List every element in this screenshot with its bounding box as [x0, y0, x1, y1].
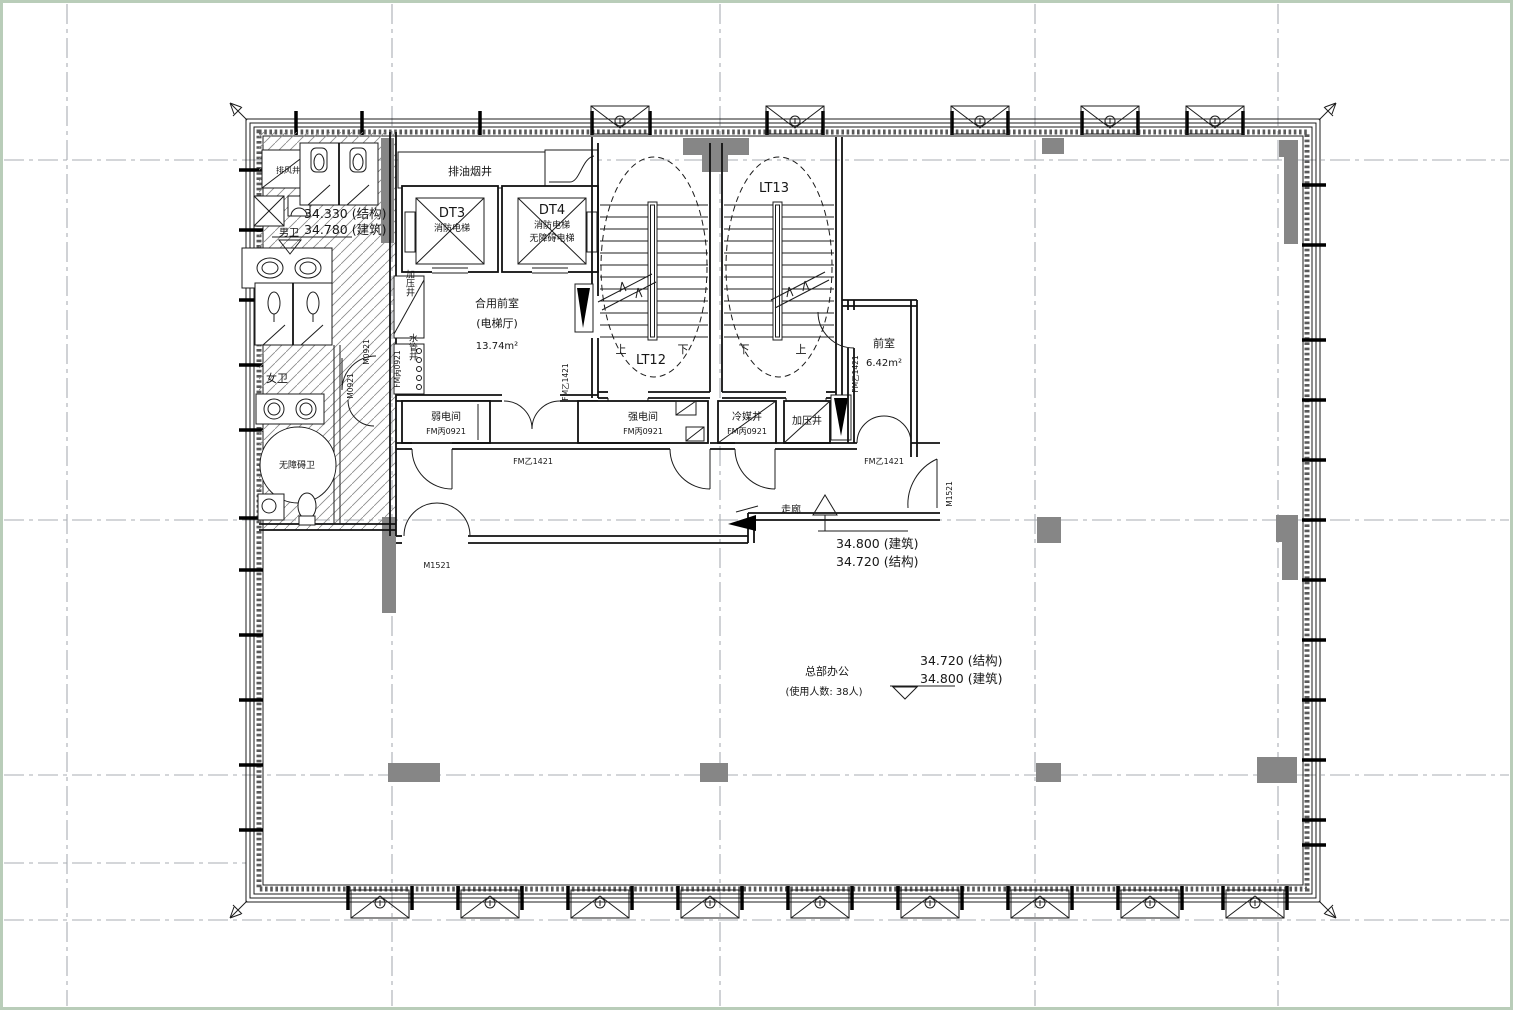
label-womens-wc: 女卫 — [266, 371, 288, 385]
label-refrigerant-shaft-door: FM丙0921 — [727, 427, 767, 436]
label-weak-room: 弱电间 — [431, 410, 461, 423]
label-dt4-type2: 无障碍电梯 — [529, 232, 574, 244]
label-anteroom-name: 前室 — [873, 336, 895, 350]
label-wc-door-2: M0921 — [362, 339, 371, 365]
level-office-struct: 34.720 (结构) — [920, 653, 1002, 668]
label-mens-wc: 男卫 — [279, 227, 299, 239]
label-lobby-area: 13.74m² — [476, 341, 518, 352]
sink-counter-north — [242, 248, 332, 288]
label-water-shaft-door: FM丙0921 — [393, 350, 402, 388]
label-lt12: LT12 — [636, 353, 666, 368]
elevator-dt4 — [502, 186, 598, 276]
level-corridor-struct: 34.720 (结构) — [836, 554, 918, 569]
wc-stalls — [255, 283, 332, 345]
label-corridor-west-door: M1521 — [423, 561, 450, 570]
label-weak-room-door: FM丙0921 — [426, 427, 466, 436]
label-stair12-door: FM乙1421 — [561, 363, 570, 401]
sink-counter-south — [256, 394, 324, 424]
label-office-name: 总部办公 — [805, 664, 849, 678]
floor-plan-canvas: 排风井 排油烟井 DT3 消防电梯 DT4 消防电梯 无障碍电梯 LT13 LT… — [0, 0, 1513, 1010]
label-exhaust-shaft: 排风井 — [276, 165, 300, 175]
label-strong-room-door: FM丙0921 — [623, 427, 663, 436]
label-water-shaft: 水管井 — [407, 332, 418, 361]
level-office-arch: 34.800 (建筑) — [920, 671, 1002, 686]
level-wc-arch: 34.780 (建筑) — [304, 222, 386, 237]
grease-exhaust-shaft — [398, 150, 598, 188]
label-lobby-door: FM乙1421 — [513, 457, 553, 466]
label-lt13: LT13 — [759, 181, 789, 196]
label-pressure-shaft-2: 加压井 — [792, 414, 822, 427]
label-dt4-type1: 消防电梯 — [534, 219, 570, 231]
label-dt3-type: 消防电梯 — [434, 222, 470, 234]
label-dt4-id: DT4 — [539, 203, 565, 218]
label-lt13-down: 下 — [739, 343, 750, 356]
label-pressure-shaft: 加压井 — [404, 269, 415, 297]
label-accessible-wc: 无障碍卫 — [279, 459, 315, 471]
label-dt3-id: DT3 — [439, 206, 465, 221]
level-wc-struct: 34.330 (结构) — [304, 206, 386, 221]
label-stair13-door: FM乙1421 — [851, 355, 860, 393]
label-anteroom-door: FM乙1421 — [864, 457, 904, 466]
label-wc-door-1: M0921 — [346, 373, 355, 399]
label-lobby-alias: (电梯厅) — [476, 317, 518, 330]
label-anteroom-area: 6.42m² — [866, 358, 902, 369]
label-lt13-up: 上 — [796, 343, 807, 356]
label-lobby-name: 合用前室 — [475, 296, 519, 310]
level-corridor-arch: 34.800 (建筑) — [836, 536, 918, 551]
floor-plan-sheet: 排风井 排油烟井 DT3 消防电梯 DT4 消防电梯 无障碍电梯 LT13 LT… — [0, 0, 1513, 1010]
label-lt12-down: 下 — [678, 343, 689, 356]
label-lt12-up: 上 — [616, 343, 627, 356]
label-corridor: 走廊 — [781, 503, 801, 516]
label-corridor-east-door: M1521 — [945, 481, 954, 507]
label-refrigerant-shaft: 冷媒井 — [732, 410, 762, 423]
label-office-occupancy: (使用人数: 38人) — [785, 685, 862, 698]
label-strong-room: 强电间 — [628, 410, 658, 423]
label-grease-shaft: 排油烟井 — [448, 164, 492, 178]
urinal-stalls — [300, 143, 378, 205]
